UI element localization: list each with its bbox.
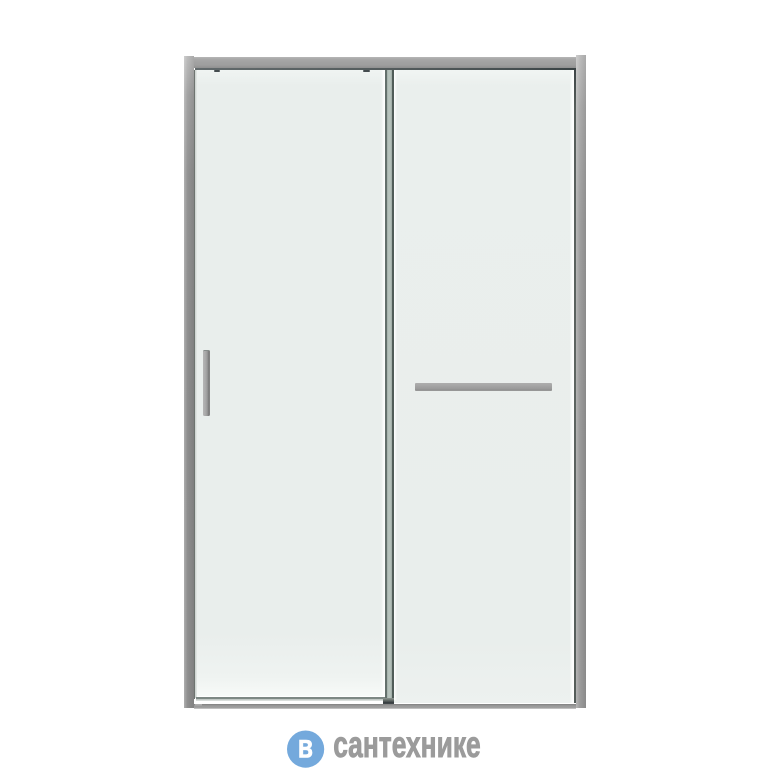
svg-text:в: в: [298, 728, 313, 765]
svg-text:сантехнике: сантехнике: [333, 724, 481, 765]
